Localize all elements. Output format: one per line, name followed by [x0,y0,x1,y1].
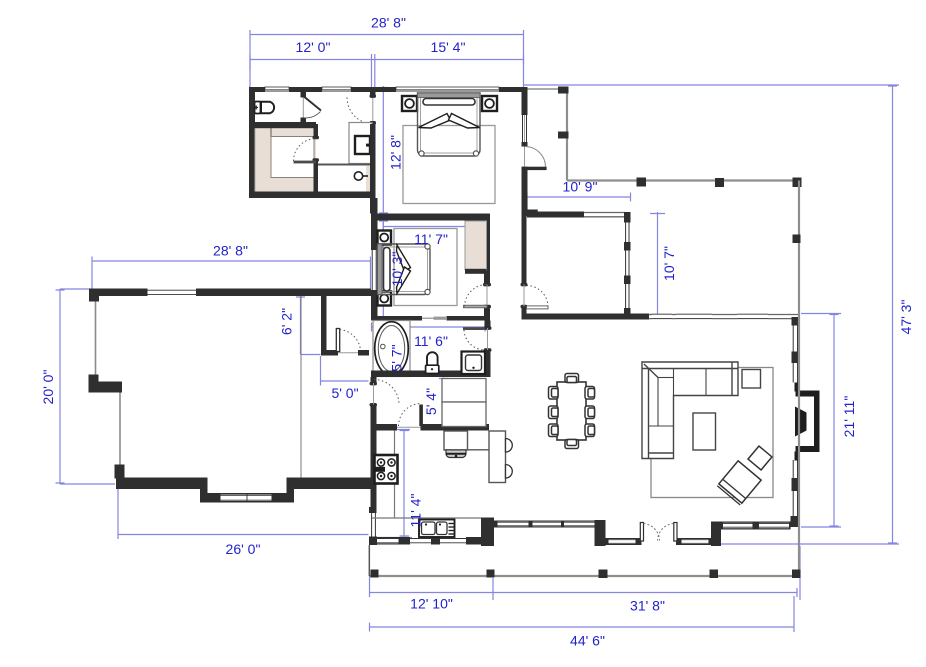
svg-text:10' 3": 10' 3" [389,252,405,287]
svg-text:28' 8": 28' 8" [213,243,248,259]
svg-text:12' 0": 12' 0" [296,39,331,55]
svg-text:5' 0": 5' 0" [331,385,358,401]
svg-text:10' 9": 10' 9" [563,179,598,195]
svg-text:44' 6": 44' 6" [570,633,605,649]
svg-text:47' 3": 47' 3" [898,300,914,335]
svg-text:15' 4": 15' 4" [431,39,466,55]
svg-text:10' 7": 10' 7" [661,246,677,281]
svg-text:5' 4": 5' 4" [423,388,439,415]
svg-text:20' 0": 20' 0" [40,370,56,405]
svg-text:11' 7": 11' 7" [414,231,448,247]
svg-text:5' 7": 5' 7" [389,344,405,371]
svg-text:31' 8": 31' 8" [630,598,665,614]
svg-text:28' 8": 28' 8" [371,15,406,31]
svg-text:21' 11": 21' 11" [841,396,857,438]
svg-text:12' 10": 12' 10" [410,596,453,612]
svg-text:11' 4": 11' 4" [408,494,424,528]
svg-text:26' 0": 26' 0" [226,541,261,557]
svg-text:6' 2": 6' 2" [279,308,295,335]
svg-text:11' 6": 11' 6" [414,333,448,349]
svg-text:12' 8": 12' 8" [388,135,404,170]
